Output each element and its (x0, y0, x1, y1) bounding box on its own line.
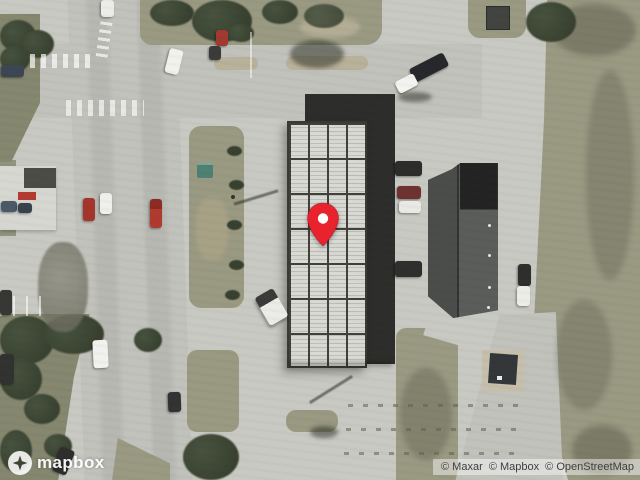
location-pin-icon (306, 202, 340, 247)
vehicle-shadow (310, 426, 338, 438)
roof-vent (487, 306, 490, 309)
vehicle (92, 340, 108, 369)
bush (227, 220, 242, 230)
building-small-roof (24, 168, 56, 188)
shed (486, 6, 510, 30)
storage-building-dark-roof (363, 94, 395, 364)
tree (304, 4, 344, 28)
vehicle (100, 193, 112, 214)
vehicle (0, 354, 14, 384)
mapbox-logo[interactable]: mapbox (8, 451, 105, 475)
vehicle (216, 30, 228, 46)
crosswalk (30, 54, 96, 68)
field-texture (556, 300, 612, 410)
light-pole (231, 195, 235, 199)
parking-dots (344, 452, 524, 455)
bush (227, 146, 242, 156)
vehicle (209, 46, 221, 60)
tree (134, 328, 162, 352)
pole-shadow (309, 375, 353, 404)
attribution: © Maxar © Mapbox © OpenStreetMap (433, 459, 640, 475)
parked-vehicle (399, 201, 421, 213)
vehicle-shadow (398, 92, 432, 102)
vehicle (0, 290, 12, 315)
bush (225, 290, 240, 300)
roof-vent (488, 254, 491, 257)
vehicle (83, 198, 95, 221)
dirt-patch (196, 198, 228, 260)
building-awning (18, 192, 36, 200)
office-building-roof (428, 163, 498, 318)
roof-vent (488, 286, 491, 289)
dumpster (197, 163, 213, 178)
attribution-link-mapbox[interactable]: © Mapbox (489, 461, 539, 473)
curb-line (250, 32, 252, 78)
crosswalk (66, 100, 144, 116)
tree (24, 394, 60, 424)
grass-island (187, 350, 239, 432)
map-canvas[interactable]: mapbox © Maxar © Mapbox © OpenStreetMap (0, 0, 640, 480)
vehicle (1, 65, 24, 77)
box-truck (254, 288, 288, 326)
tree (262, 0, 298, 24)
mapbox-logo-text: mapbox (37, 453, 105, 473)
mapbox-logo-icon (8, 451, 32, 475)
vehicle (1, 201, 17, 212)
parked-vehicle (395, 161, 422, 176)
tree (526, 2, 576, 42)
field-texture (400, 368, 452, 460)
vehicle (18, 203, 32, 213)
tree-shadow (290, 40, 344, 68)
bush (229, 180, 244, 190)
parked-vehicle (518, 264, 531, 286)
vehicle (101, 0, 114, 17)
parked-vehicle (395, 261, 422, 277)
bare-tree (38, 242, 88, 332)
vehicle (168, 392, 182, 412)
roof-vent (488, 224, 491, 227)
bush (229, 260, 244, 270)
field-texture (586, 70, 634, 280)
tree (183, 434, 239, 480)
parked-vehicle (517, 286, 530, 306)
attribution-link-maxar[interactable]: © Maxar (441, 461, 483, 473)
attribution-link-openstreetmap[interactable]: © OpenStreetMap (545, 461, 634, 473)
parking-dots (348, 404, 520, 407)
vehicle (150, 199, 162, 228)
parked-vehicle (397, 186, 421, 199)
shed-detail (497, 376, 502, 380)
building-shadow (288, 362, 392, 367)
tree (150, 0, 194, 26)
shed-roof (488, 353, 518, 385)
map-marker[interactable] (306, 202, 340, 247)
parking-dots (346, 428, 522, 431)
